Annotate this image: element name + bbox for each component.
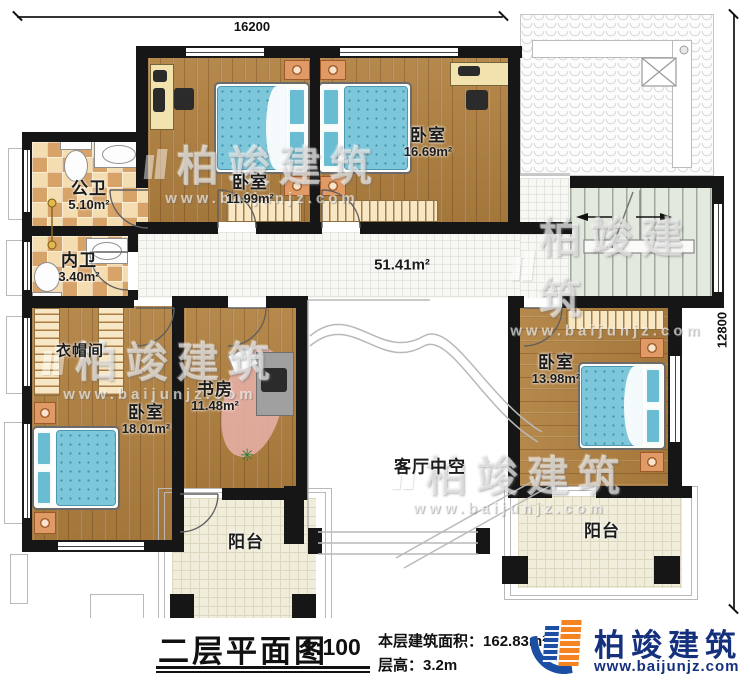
room-name: 内卫 [58, 251, 99, 270]
room-name: 卧室 [404, 126, 452, 145]
void-band-stub [308, 528, 322, 554]
balcony-post [502, 556, 528, 584]
room-label-public-bath: 公卫 5.10m² [68, 179, 109, 213]
roof-walkway-vertical [672, 40, 692, 168]
wall-study-bottom [172, 488, 180, 500]
nightstand [640, 338, 664, 358]
desk-item [458, 66, 480, 76]
corridor-floor [138, 232, 572, 298]
room-name: 客厅中空 [394, 457, 466, 476]
brand-website: www.baijunjz.com [594, 658, 739, 675]
floor-height-line: 层高：3.2m [378, 654, 457, 675]
wardrobe [320, 200, 438, 222]
pillow [288, 88, 306, 126]
brand-logo-icon [532, 618, 588, 678]
nightstand [34, 402, 56, 424]
sink [102, 145, 136, 164]
room-label-balcony-right: 阳台 [584, 521, 620, 540]
wall-bed4-top [562, 296, 724, 308]
room-area: 3.40m² [58, 270, 99, 285]
floor-plan: ✳ [0, 0, 750, 686]
pillow [288, 130, 306, 168]
window [58, 540, 144, 552]
window [186, 46, 264, 58]
room-label-balcony-left: 阳台 [228, 532, 264, 551]
room-name: 书房 [191, 380, 239, 399]
void-band-stub [476, 528, 490, 554]
window [712, 204, 724, 292]
balcony-wall-stub [284, 486, 304, 544]
room-label-bedroom-2: 卧室 16.69m² [404, 126, 452, 160]
nightstand [320, 176, 346, 196]
room-name: 阳台 [228, 532, 264, 551]
floor-height-value: 3.2m [423, 657, 457, 674]
nightstand [640, 452, 664, 472]
wall-bath-top [22, 132, 148, 142]
plant-icon: ✳ [240, 446, 254, 466]
room-label-cloakroom: 衣帽间 [56, 344, 104, 361]
room-label-bedroom-4: 卧室 13.98m² [532, 353, 580, 387]
balcony-post [170, 594, 194, 620]
office-chair [261, 368, 287, 392]
room-area: 13.98m² [532, 372, 580, 387]
brand-logo-building-blue [543, 626, 560, 662]
title-underline [156, 666, 370, 673]
nightstand [284, 60, 310, 80]
dimension-top-label: 16200 [234, 19, 270, 34]
window [22, 318, 32, 386]
room-label-bedroom-3: 卧室 18.01m² [122, 403, 170, 437]
bed-sheet [624, 366, 646, 446]
floor-height-label: 层高： [378, 657, 423, 674]
wall-bed4-left [508, 296, 520, 498]
room-area: 5.10m² [68, 198, 109, 213]
window [340, 46, 458, 58]
room-label-bedroom-1: 卧室 11.99m² [226, 173, 274, 207]
wall-bath-divider [22, 226, 138, 236]
room-label-void: 客厅中空 [394, 457, 466, 476]
corridor-area-label: 51.41m² [374, 258, 430, 275]
window [22, 242, 32, 290]
building-area-label: 本层建筑面积： [378, 633, 483, 650]
room-area: 18.01m² [122, 422, 170, 437]
dresser-item [153, 88, 165, 112]
dimension-right-label: 12800 [715, 312, 730, 348]
bed-mattress [56, 430, 116, 506]
window [668, 356, 682, 442]
pillow [322, 130, 340, 168]
wall-corridor-top [256, 222, 322, 234]
pillow [36, 431, 52, 466]
room-area: 51.41m² [374, 258, 430, 275]
eave-outline [4, 422, 24, 524]
room-name: 阳台 [584, 521, 620, 540]
brand-logo-building-orange [558, 620, 581, 666]
room-name: 卧室 [532, 353, 580, 372]
dimension-line-right [733, 15, 735, 610]
toilet [64, 150, 88, 182]
dresser-item [153, 70, 167, 82]
wall-bed1-left [136, 46, 148, 188]
dimension-line-top [17, 16, 503, 18]
nightstand [284, 176, 310, 196]
wardrobe [566, 310, 664, 330]
pillow [645, 368, 661, 404]
room-area: 11.99m² [226, 192, 274, 207]
wall-bed1-bed2-divider [310, 58, 320, 222]
window [22, 150, 32, 212]
pillow [36, 470, 52, 505]
room-name: 公卫 [68, 179, 109, 198]
wall-bed4-bottom [596, 486, 692, 498]
wall-corridor-top [136, 222, 218, 234]
pillow [322, 88, 340, 126]
wall-study-right [296, 296, 308, 500]
room-label-study: 书房 11.48m² [191, 380, 239, 414]
pillow [645, 408, 661, 444]
eave-outline [10, 554, 28, 604]
plan-scale: 1:100 [302, 634, 361, 661]
nightstand [320, 60, 346, 80]
balcony-post [292, 594, 316, 620]
wall-bed4-bottom [508, 486, 552, 498]
balcony-post [654, 556, 680, 584]
wall-corridor-bottom [22, 296, 134, 308]
room-area: 16.69m² [404, 145, 452, 160]
title-block: 二层平面图 1:100 本层建筑面积：162.83m² 层高：3.2m 柏竣建筑… [0, 618, 750, 686]
roof-walkway-horizontal [532, 40, 690, 58]
chair [174, 88, 194, 110]
room-name: 衣帽间 [56, 344, 104, 361]
chair [466, 90, 488, 110]
room-name: 卧室 [226, 173, 274, 192]
wall-bed3-study-divider [172, 296, 184, 542]
wall-bed2-right [508, 46, 520, 232]
corridor-extension-floor [520, 178, 570, 298]
bed-mattress [344, 86, 408, 170]
bed-sheet [266, 86, 288, 170]
wall-corridor-top [360, 222, 572, 234]
wall-neiwei-right [128, 236, 138, 252]
wall-stairs-top [570, 176, 724, 188]
room-name: 卧室 [122, 403, 170, 422]
building-area-line: 本层建筑面积：162.83m² [378, 630, 547, 651]
nightstand [34, 512, 56, 534]
room-area: 11.48m² [191, 399, 239, 414]
room-label-inner-bath: 内卫 3.40m² [58, 251, 99, 285]
stairwell-floor [570, 188, 712, 298]
window [22, 424, 32, 518]
toilet [34, 262, 60, 292]
